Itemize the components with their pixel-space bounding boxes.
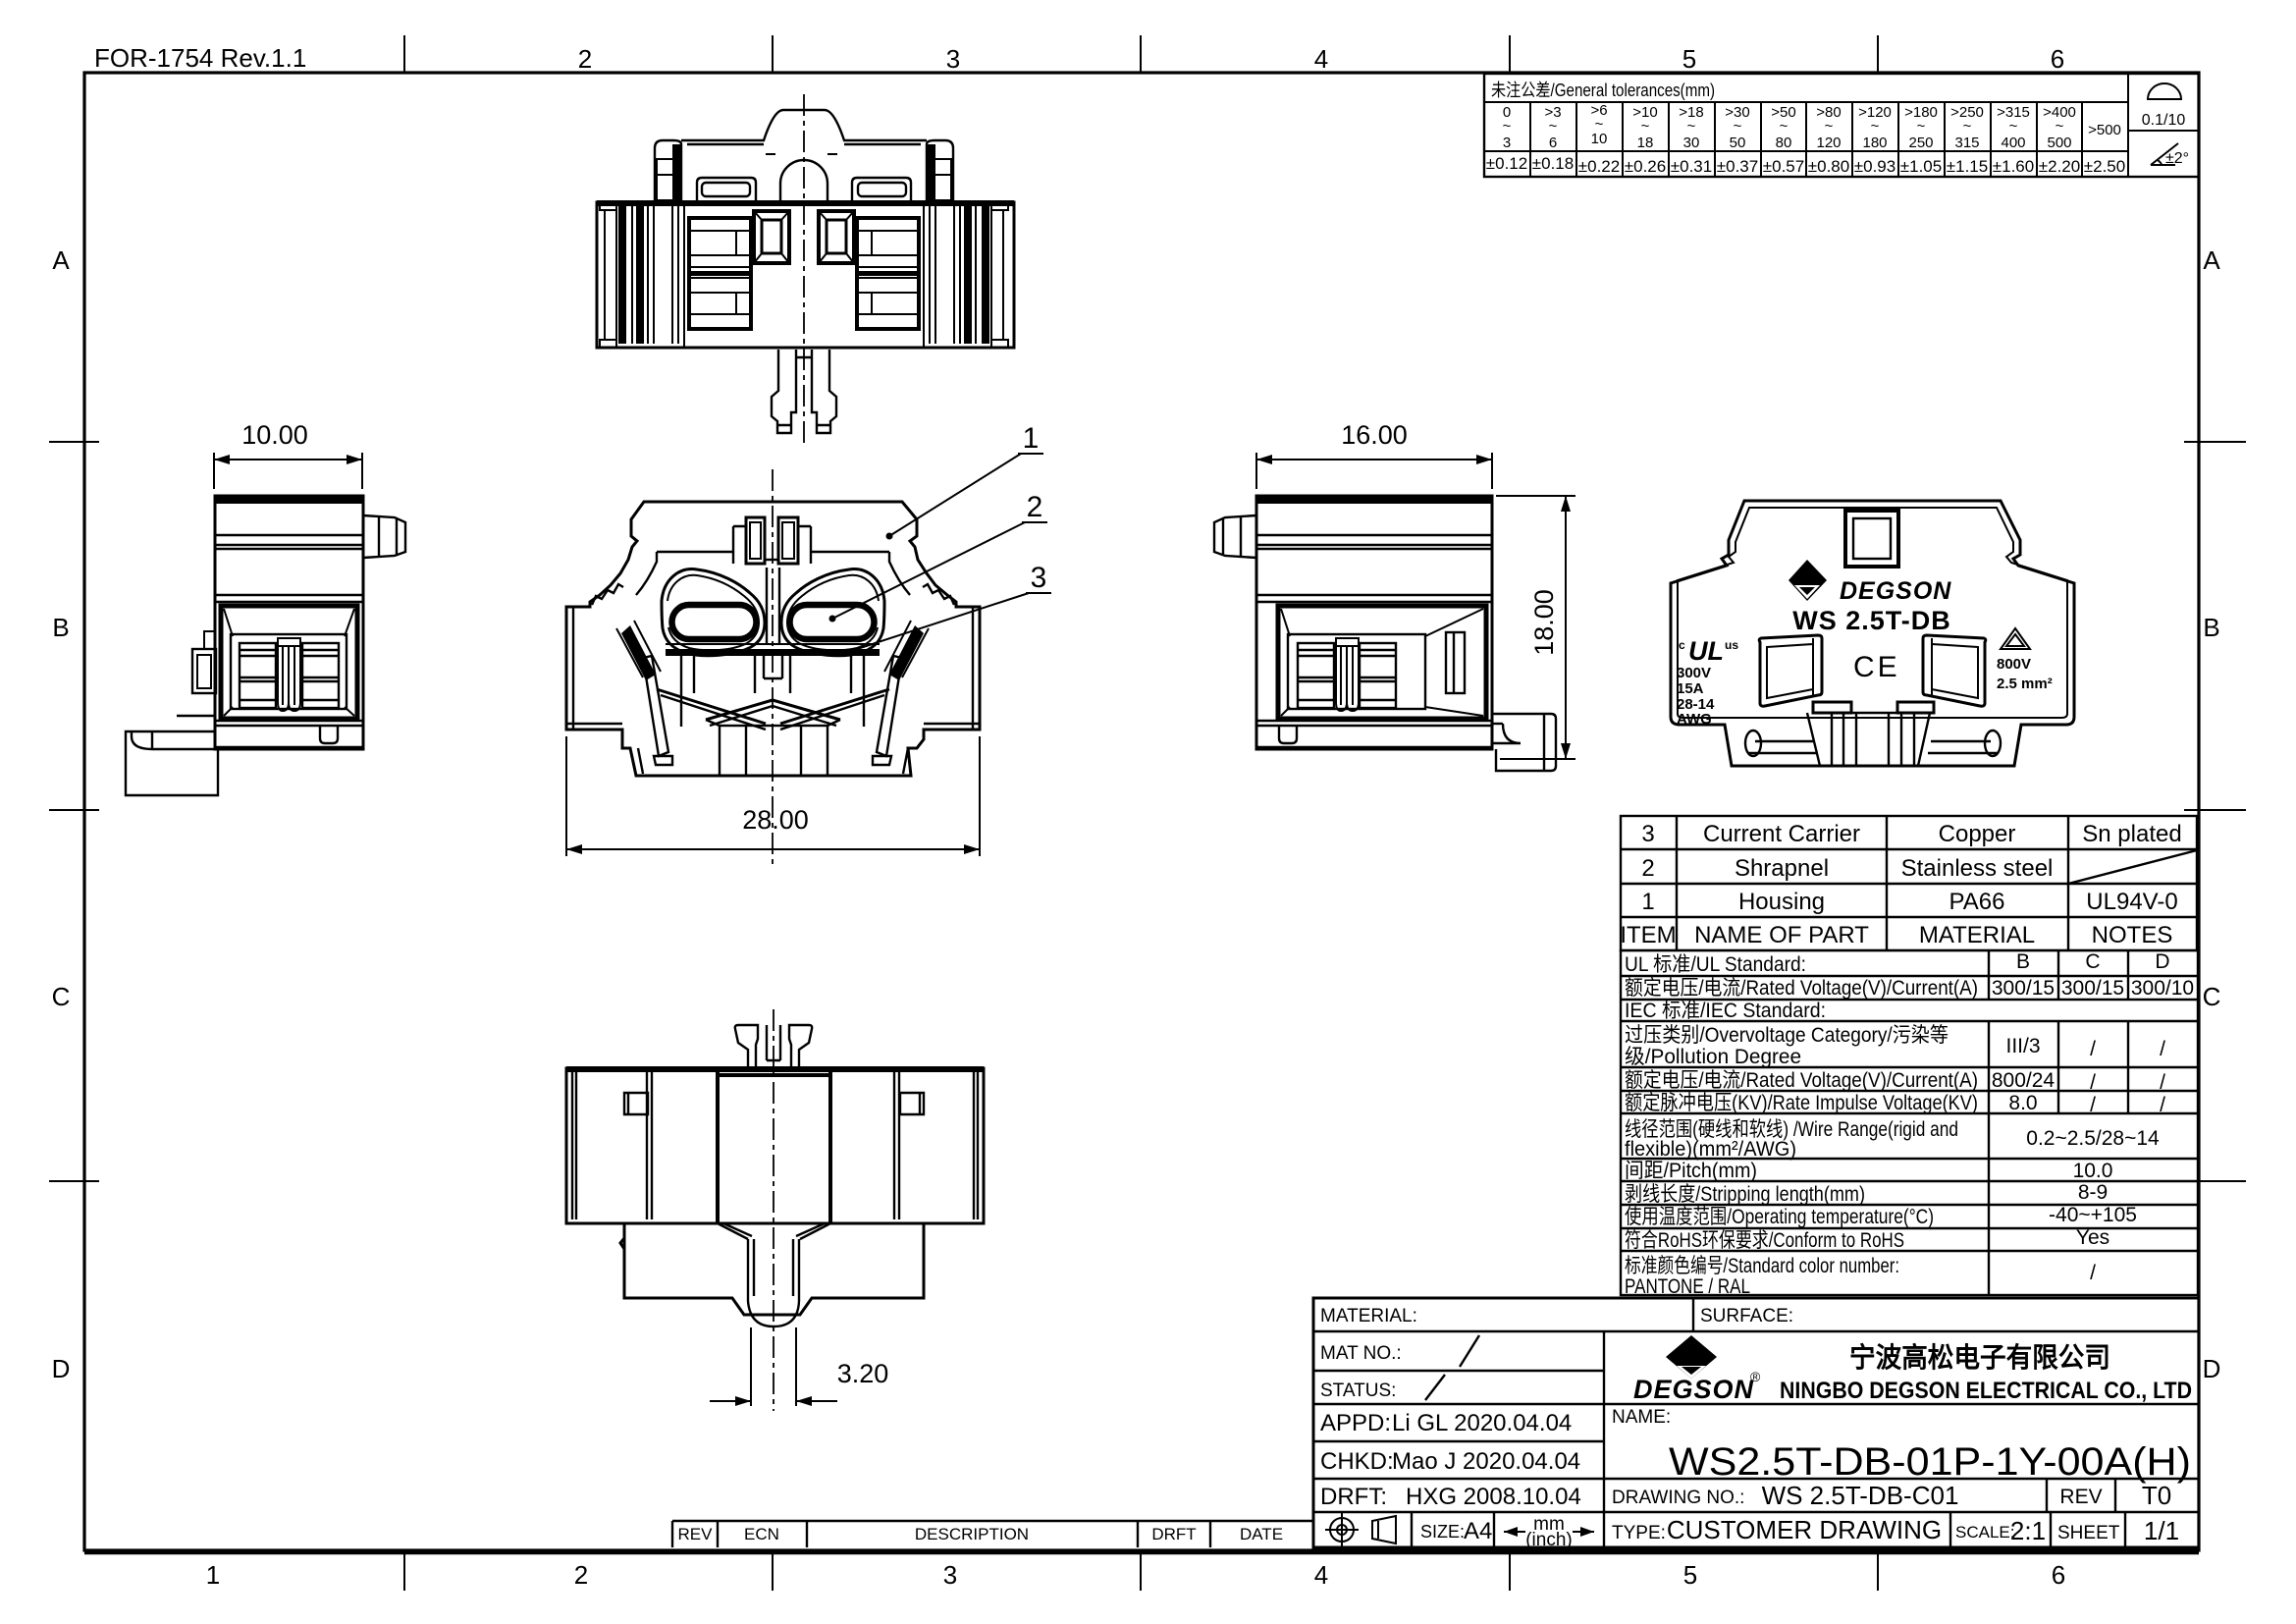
svg-text:DRFT: DRFT bbox=[1151, 1525, 1196, 1543]
svg-text:2: 2 bbox=[1641, 855, 1654, 882]
svg-text:Stainless steel: Stainless steel bbox=[1901, 855, 2054, 882]
svg-text:~: ~ bbox=[1687, 118, 1696, 135]
svg-text:2.5 mm²: 2.5 mm² bbox=[1997, 676, 2053, 692]
svg-text:1: 1 bbox=[206, 1560, 220, 1590]
svg-text:8-9: 8-9 bbox=[2078, 1181, 2108, 1204]
svg-text:Housing: Housing bbox=[1738, 889, 1825, 915]
svg-text:±0.26: ±0.26 bbox=[1625, 157, 1666, 176]
svg-text:/: / bbox=[2090, 1071, 2096, 1094]
svg-text:300V: 300V bbox=[1677, 665, 1711, 681]
svg-text:3: 3 bbox=[1503, 135, 1511, 151]
svg-text:120: 120 bbox=[1816, 135, 1841, 151]
svg-text:Mao J 2020.04.04: Mao J 2020.04.04 bbox=[1392, 1448, 1580, 1475]
svg-text:18.00: 18.00 bbox=[1529, 589, 1559, 656]
svg-text:宁波高松电子有限公司: 宁波高松电子有限公司 bbox=[1849, 1341, 2110, 1373]
svg-text:800/24: 800/24 bbox=[1992, 1069, 2056, 1092]
svg-text:级/Pollution Degree: 级/Pollution Degree bbox=[1625, 1046, 1801, 1068]
svg-text:±1.60: ±1.60 bbox=[1993, 157, 2034, 176]
svg-text:WS 2.5T-DB: WS 2.5T-DB bbox=[1792, 606, 1951, 635]
svg-text:额定电压/电流/Rated Voltage(V)/Curre: 额定电压/电流/Rated Voltage(V)/Current(A) bbox=[1625, 1069, 1978, 1092]
svg-text:Li GL 2020.04.04: Li GL 2020.04.04 bbox=[1392, 1410, 1572, 1436]
svg-text:16.00: 16.00 bbox=[1341, 420, 1408, 450]
svg-text:8.0: 8.0 bbox=[2008, 1092, 2037, 1114]
svg-text:Sn plated: Sn plated bbox=[2082, 821, 2181, 847]
svg-text:剥线长度/Stripping length(mm): 剥线长度/Stripping length(mm) bbox=[1625, 1183, 1865, 1206]
svg-text:±0.37: ±0.37 bbox=[1717, 157, 1758, 176]
svg-text:B: B bbox=[2016, 950, 2030, 973]
svg-text:15A: 15A bbox=[1677, 680, 1704, 697]
svg-text:2: 2 bbox=[578, 44, 592, 74]
svg-text:TYPE:: TYPE: bbox=[1612, 1523, 1666, 1543]
svg-text:±1.15: ±1.15 bbox=[1947, 157, 1988, 176]
svg-text:A4: A4 bbox=[1464, 1518, 1492, 1544]
svg-text:/: / bbox=[2090, 1262, 2096, 1284]
svg-text:±2.20: ±2.20 bbox=[2039, 157, 2080, 176]
svg-text:未注公差/General tolerances(mm): 未注公差/General tolerances(mm) bbox=[1491, 81, 1715, 100]
svg-text:B: B bbox=[52, 613, 69, 642]
svg-text:c: c bbox=[1679, 638, 1685, 652]
svg-text:MATERIAL: MATERIAL bbox=[1919, 922, 2035, 948]
svg-text:180: 180 bbox=[1862, 135, 1887, 151]
svg-text:SIZE:: SIZE: bbox=[1420, 1522, 1465, 1542]
svg-text:间距/Pitch(mm): 间距/Pitch(mm) bbox=[1625, 1160, 1757, 1182]
svg-text:800V: 800V bbox=[1997, 656, 2031, 673]
svg-text:~: ~ bbox=[1641, 118, 1650, 135]
svg-text:3.20: 3.20 bbox=[837, 1359, 889, 1388]
svg-text:SURFACE:: SURFACE: bbox=[1700, 1306, 1793, 1326]
svg-text:PA66: PA66 bbox=[1949, 889, 2005, 915]
svg-text:III/3: III/3 bbox=[2005, 1035, 2040, 1057]
svg-text:DATE: DATE bbox=[1240, 1525, 1283, 1543]
svg-text:PANTONE / RAL: PANTONE / RAL bbox=[1625, 1275, 1750, 1298]
svg-text:-40~+105: -40~+105 bbox=[2049, 1204, 2137, 1226]
svg-text:±1.05: ±1.05 bbox=[1900, 157, 1942, 176]
svg-text:CUSTOMER DRAWING: CUSTOMER DRAWING bbox=[1667, 1515, 1942, 1544]
svg-text:400: 400 bbox=[2001, 135, 2025, 151]
svg-text:DESCRIPTION: DESCRIPTION bbox=[915, 1525, 1029, 1543]
svg-text:2: 2 bbox=[1027, 491, 1043, 523]
svg-text:300/15: 300/15 bbox=[1992, 977, 2055, 1000]
svg-text:1/1: 1/1 bbox=[2144, 1516, 2179, 1545]
svg-text:±0.12: ±0.12 bbox=[1486, 154, 1527, 173]
svg-text:额定脉冲电压(KV)/Rate Impulse Voltag: 额定脉冲电压(KV)/Rate Impulse Voltage(KV) bbox=[1625, 1092, 1978, 1114]
svg-text:IEC 标准/IEC Standard:: IEC 标准/IEC Standard: bbox=[1625, 1000, 1826, 1022]
svg-text:~: ~ bbox=[1503, 118, 1512, 135]
svg-text:UL 标准/UL Standard:: UL 标准/UL Standard: bbox=[1625, 953, 1806, 976]
svg-text:DEGSON: DEGSON bbox=[1633, 1375, 1754, 1404]
svg-text:(inch): (inch) bbox=[1525, 1530, 1573, 1550]
svg-text:3: 3 bbox=[943, 1560, 957, 1590]
svg-text:标准颜色编号/Standard color number:: 标准颜色编号/Standard color number: bbox=[1625, 1255, 1899, 1277]
svg-text:A: A bbox=[2203, 245, 2220, 275]
svg-text:±0.57: ±0.57 bbox=[1763, 157, 1804, 176]
svg-text:C: C bbox=[2085, 950, 2100, 973]
svg-text:30: 30 bbox=[1683, 135, 1700, 151]
svg-text:/: / bbox=[2160, 1038, 2165, 1060]
svg-text:NAME:: NAME: bbox=[1612, 1407, 1671, 1428]
svg-text:~: ~ bbox=[1549, 118, 1558, 135]
svg-text:~: ~ bbox=[1917, 118, 1926, 135]
svg-text:B: B bbox=[2203, 613, 2219, 642]
svg-text:DEGSON: DEGSON bbox=[1840, 577, 1951, 605]
svg-text:ITEM: ITEM bbox=[1620, 922, 1676, 948]
svg-text:10.0: 10.0 bbox=[2073, 1160, 2113, 1182]
svg-text:/: / bbox=[2160, 1071, 2165, 1094]
svg-text:DRFT:: DRFT: bbox=[1320, 1484, 1387, 1510]
svg-text:NINGBO DEGSON ELECTRICAL CO.,: NINGBO DEGSON ELECTRICAL CO., LTD bbox=[1780, 1378, 2192, 1404]
svg-text:SHEET: SHEET bbox=[2057, 1523, 2120, 1543]
svg-text:50: 50 bbox=[1730, 135, 1746, 151]
svg-text:额定电压/电流/Rated Voltage(V)/Curre: 额定电压/电流/Rated Voltage(V)/Current(A) bbox=[1625, 977, 1978, 1000]
svg-text:2: 2 bbox=[574, 1560, 588, 1590]
svg-text:10.00: 10.00 bbox=[241, 420, 308, 450]
svg-text:Yes: Yes bbox=[2076, 1226, 2109, 1249]
svg-text:HXG 2008.10.04: HXG 2008.10.04 bbox=[1406, 1484, 1581, 1510]
svg-text:4: 4 bbox=[1314, 44, 1328, 74]
svg-text:3: 3 bbox=[1031, 562, 1047, 594]
svg-text:ECN: ECN bbox=[744, 1525, 779, 1543]
svg-text:±0.80: ±0.80 bbox=[1808, 157, 1849, 176]
svg-text:Copper: Copper bbox=[1939, 821, 2016, 847]
svg-text:±2.50: ±2.50 bbox=[2084, 157, 2125, 176]
svg-text:6: 6 bbox=[2052, 1560, 2065, 1590]
svg-text:NAME OF PART: NAME OF PART bbox=[1694, 922, 1869, 948]
svg-text:REV: REV bbox=[2059, 1486, 2102, 1508]
svg-text:/: / bbox=[2160, 1094, 2165, 1116]
svg-text:flexible)(mm²/AWG): flexible)(mm²/AWG) bbox=[1625, 1138, 1796, 1161]
svg-text:~: ~ bbox=[1780, 118, 1789, 135]
svg-text:3: 3 bbox=[1641, 821, 1654, 847]
svg-text:WS2.5T-DB-01P-1Y-00A(H): WS2.5T-DB-01P-1Y-00A(H) bbox=[1669, 1440, 2191, 1484]
svg-text:D: D bbox=[2155, 950, 2169, 973]
svg-text:STATUS:: STATUS: bbox=[1320, 1380, 1396, 1401]
svg-text:T0: T0 bbox=[2142, 1481, 2171, 1510]
svg-text:D: D bbox=[52, 1354, 71, 1383]
svg-text:A: A bbox=[52, 245, 70, 275]
svg-text:Shrapnel: Shrapnel bbox=[1735, 855, 1829, 882]
svg-text:UL94V-0: UL94V-0 bbox=[2086, 889, 2177, 915]
svg-text:18: 18 bbox=[1637, 135, 1654, 151]
svg-text:300/15: 300/15 bbox=[2061, 977, 2124, 1000]
svg-text:±0.31: ±0.31 bbox=[1671, 157, 1712, 176]
svg-text:/: / bbox=[2090, 1038, 2096, 1060]
svg-text:80: 80 bbox=[1776, 135, 1792, 151]
svg-text:250: 250 bbox=[1908, 135, 1933, 151]
svg-text:1: 1 bbox=[1023, 422, 1040, 455]
svg-text:AWG: AWG bbox=[1677, 711, 1712, 728]
svg-text:~: ~ bbox=[1871, 118, 1880, 135]
svg-text:5: 5 bbox=[1683, 1560, 1697, 1590]
svg-text:MATERIAL:: MATERIAL: bbox=[1320, 1306, 1417, 1326]
svg-text:±0.18: ±0.18 bbox=[1532, 154, 1574, 173]
svg-text:/: / bbox=[2090, 1094, 2096, 1116]
svg-text:315: 315 bbox=[1954, 135, 1979, 151]
svg-text:UL: UL bbox=[1688, 636, 1724, 666]
svg-text:6: 6 bbox=[1549, 135, 1557, 151]
svg-text:28.00: 28.00 bbox=[742, 805, 809, 835]
svg-text:10: 10 bbox=[1591, 131, 1608, 147]
svg-text:5: 5 bbox=[1682, 44, 1696, 74]
svg-text:C: C bbox=[52, 982, 71, 1011]
svg-text:MAT NO.:: MAT NO.: bbox=[1320, 1343, 1402, 1364]
svg-text:0.1/10: 0.1/10 bbox=[2142, 112, 2186, 129]
svg-text:Current Carrier: Current Carrier bbox=[1703, 821, 1860, 847]
svg-text:6: 6 bbox=[2051, 44, 2064, 74]
svg-text:~: ~ bbox=[2009, 118, 2018, 135]
svg-text:APPD:: APPD: bbox=[1320, 1410, 1391, 1436]
svg-text:使用温度范围/Operating temperature(°: 使用温度范围/Operating temperature(°C) bbox=[1625, 1206, 1934, 1228]
svg-text:>500: >500 bbox=[2088, 122, 2121, 138]
svg-text:过压类别/Overvoltage Category/污染等: 过压类别/Overvoltage Category/污染等 bbox=[1625, 1024, 1949, 1047]
svg-text:2:1: 2:1 bbox=[2010, 1516, 2046, 1545]
svg-text:REV: REV bbox=[678, 1525, 714, 1543]
svg-text:±0.93: ±0.93 bbox=[1854, 157, 1896, 176]
svg-text:±0.22: ±0.22 bbox=[1578, 157, 1620, 176]
svg-text:1: 1 bbox=[1641, 889, 1654, 915]
svg-text:®: ® bbox=[1750, 1369, 1761, 1384]
svg-text:300/10: 300/10 bbox=[2131, 977, 2194, 1000]
svg-text:CE: CE bbox=[1853, 651, 1900, 683]
svg-text:500: 500 bbox=[2047, 135, 2071, 151]
svg-text:us: us bbox=[1725, 638, 1738, 652]
svg-text:±2°: ±2° bbox=[2165, 150, 2189, 167]
svg-text:符合RoHS环保要求/Conform to RoHS: 符合RoHS环保要求/Conform to RoHS bbox=[1625, 1229, 1904, 1252]
svg-text:CHKD:: CHKD: bbox=[1320, 1448, 1394, 1475]
svg-text:SCALE:: SCALE: bbox=[1955, 1523, 2014, 1542]
svg-text:0.2~2.5/28~14: 0.2~2.5/28~14 bbox=[2026, 1127, 2160, 1150]
svg-text:~: ~ bbox=[2056, 118, 2064, 135]
svg-text:~: ~ bbox=[1734, 118, 1742, 135]
svg-text:~: ~ bbox=[1963, 118, 1972, 135]
svg-text:NOTES: NOTES bbox=[2092, 922, 2173, 948]
svg-text:DRAWING NO.:: DRAWING NO.: bbox=[1612, 1488, 1744, 1508]
svg-text:FOR-1754 Rev.1.1: FOR-1754 Rev.1.1 bbox=[94, 43, 306, 73]
svg-text:C: C bbox=[2203, 982, 2221, 1011]
svg-text:D: D bbox=[2203, 1354, 2221, 1383]
svg-text:3: 3 bbox=[946, 44, 960, 74]
svg-text:WS 2.5T-DB-C01: WS 2.5T-DB-C01 bbox=[1762, 1481, 1959, 1510]
svg-text:4: 4 bbox=[1314, 1560, 1328, 1590]
svg-text:~: ~ bbox=[1825, 118, 1834, 135]
